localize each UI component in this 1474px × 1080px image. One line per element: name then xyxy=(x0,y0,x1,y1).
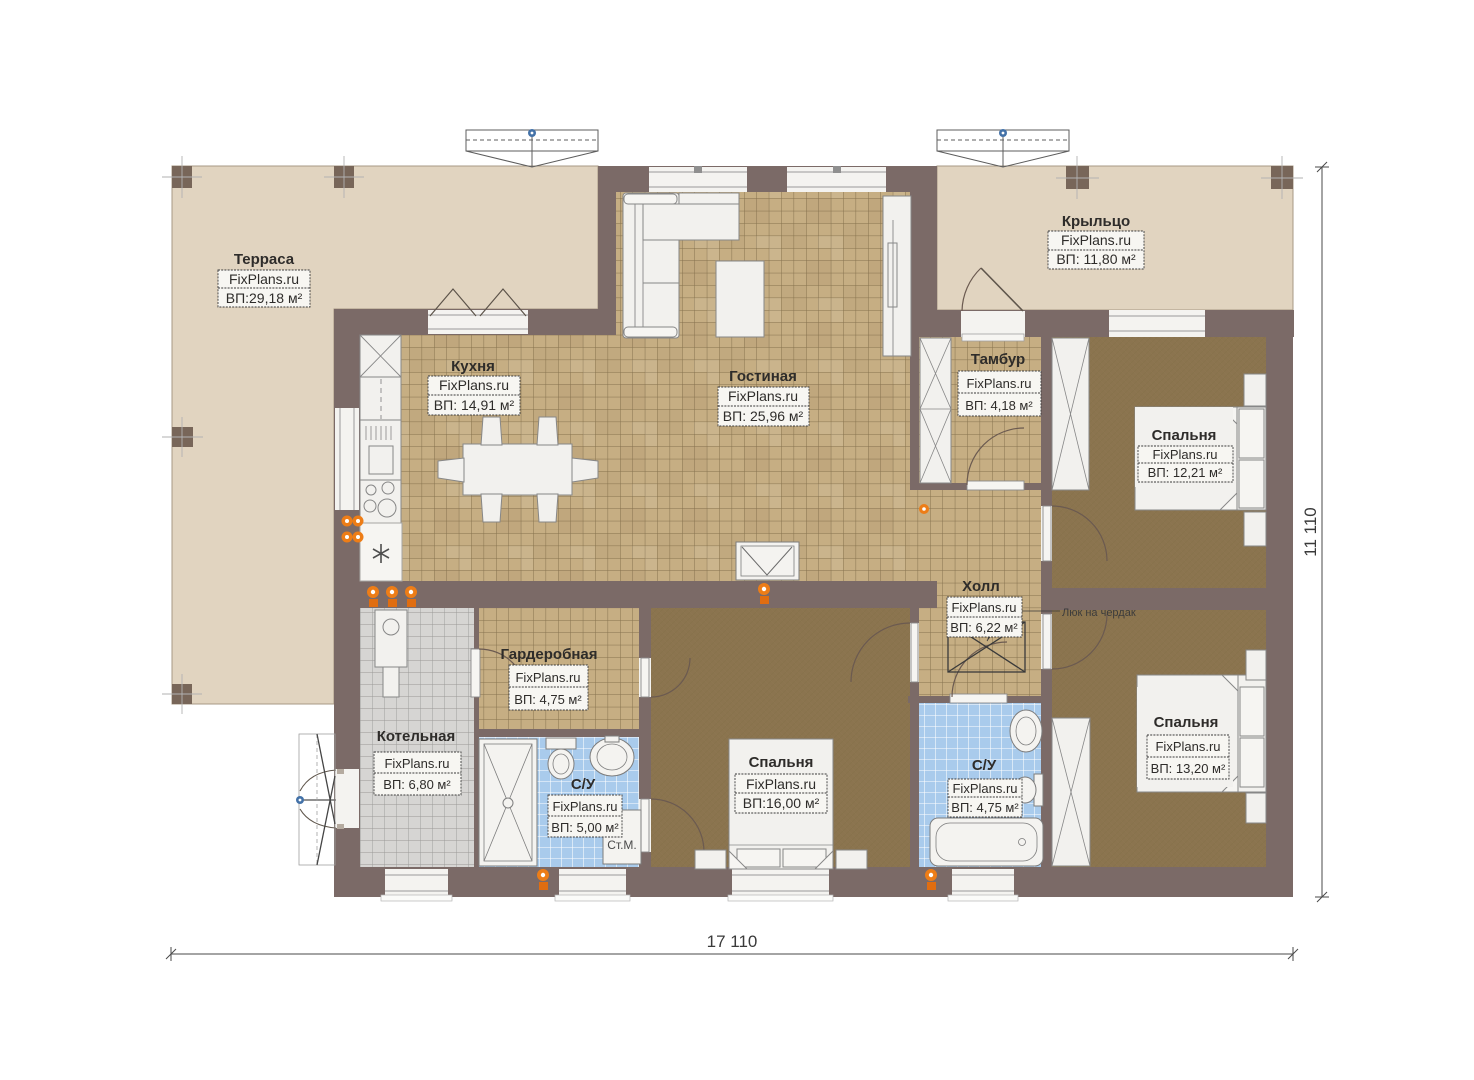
svg-text:Тамбур: Тамбур xyxy=(971,351,1025,368)
svg-text:Люк на чердак: Люк на чердак xyxy=(1062,607,1136,619)
svg-text:ВП: 4,18 м²: ВП: 4,18 м² xyxy=(965,398,1033,413)
svg-text:Котельная: Котельная xyxy=(377,728,456,745)
svg-text:11 110: 11 110 xyxy=(1301,507,1320,556)
svg-text:С/У: С/У xyxy=(972,757,997,774)
svg-text:Холл: Холл xyxy=(962,578,1000,595)
svg-text:ВП: 6,80 м²: ВП: 6,80 м² xyxy=(383,777,451,792)
svg-text:Терраса: Терраса xyxy=(234,251,295,268)
svg-text:Спальня: Спальня xyxy=(1154,714,1219,731)
svg-text:FixPlans.ru: FixPlans.ru xyxy=(384,756,449,771)
svg-text:FixPlans.ru: FixPlans.ru xyxy=(1152,447,1217,462)
svg-text:17 110: 17 110 xyxy=(707,932,758,951)
svg-text:FixPlans.ru: FixPlans.ru xyxy=(229,271,299,287)
svg-text:ВП: 11,80 м²: ВП: 11,80 м² xyxy=(1056,251,1136,267)
svg-text:FixPlans.ru: FixPlans.ru xyxy=(746,776,816,792)
svg-text:ВП: 13,20 м²: ВП: 13,20 м² xyxy=(1151,761,1226,776)
svg-text:Спальня: Спальня xyxy=(749,754,814,771)
svg-text:FixPlans.ru: FixPlans.ru xyxy=(552,799,617,814)
svg-text:Крыльцо: Крыльцо xyxy=(1062,213,1130,230)
svg-text:FixPlans.ru: FixPlans.ru xyxy=(1155,739,1220,754)
svg-text:Спальня: Спальня xyxy=(1152,427,1217,444)
svg-text:ВП: 4,75 м²: ВП: 4,75 м² xyxy=(514,692,582,707)
svg-text:FixPlans.ru: FixPlans.ru xyxy=(515,670,580,685)
svg-text:ВП: 4,75 м²: ВП: 4,75 м² xyxy=(951,800,1019,815)
svg-text:FixPlans.ru: FixPlans.ru xyxy=(952,781,1017,796)
svg-text:С/У: С/У xyxy=(571,776,596,793)
svg-text:Гардеробная: Гардеробная xyxy=(500,646,597,663)
svg-text:FixPlans.ru: FixPlans.ru xyxy=(728,388,798,404)
svg-text:Гостиная: Гостиная xyxy=(729,368,797,385)
svg-text:ВП:29,18 м²: ВП:29,18 м² xyxy=(226,290,303,306)
svg-text:ВП: 25,96 м²: ВП: 25,96 м² xyxy=(723,408,804,424)
svg-text:FixPlans.ru: FixPlans.ru xyxy=(951,600,1016,615)
svg-text:ВП: 5,00 м²: ВП: 5,00 м² xyxy=(551,820,619,835)
svg-text:FixPlans.ru: FixPlans.ru xyxy=(439,377,509,393)
svg-text:ВП: 14,91 м²: ВП: 14,91 м² xyxy=(434,397,515,413)
svg-text:Кухня: Кухня xyxy=(451,358,495,375)
svg-text:FixPlans.ru: FixPlans.ru xyxy=(1061,232,1131,248)
svg-text:Ст.М.: Ст.М. xyxy=(607,838,637,852)
svg-text:ВП: 12,21 м²: ВП: 12,21 м² xyxy=(1148,465,1223,480)
svg-text:ВП: 6,22 м²: ВП: 6,22 м² xyxy=(950,620,1018,635)
svg-text:ВП:16,00 м²: ВП:16,00 м² xyxy=(743,795,820,811)
svg-text:FixPlans.ru: FixPlans.ru xyxy=(966,376,1031,391)
